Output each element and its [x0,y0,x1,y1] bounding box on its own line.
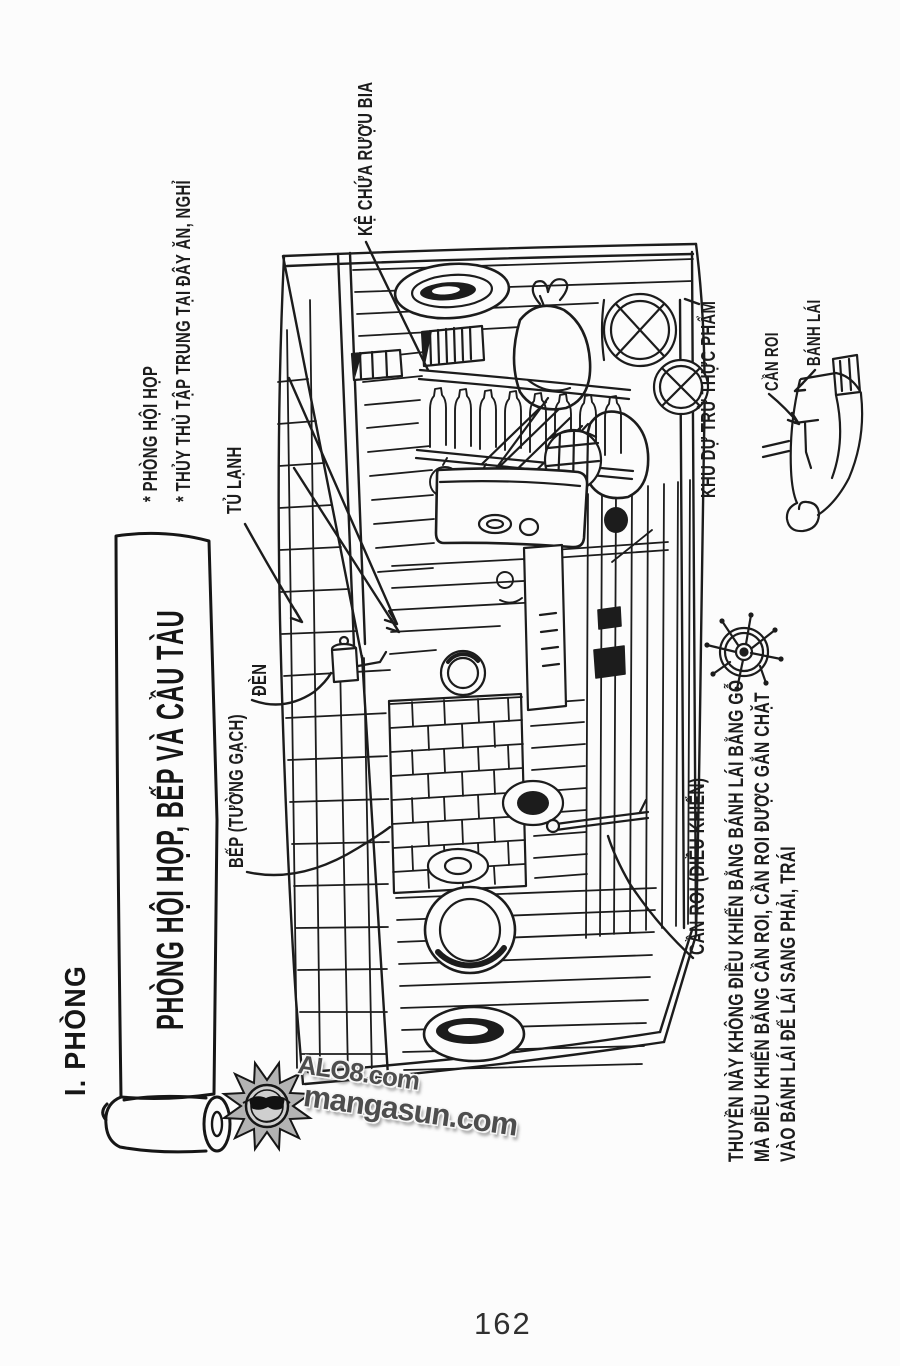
manga-page: I. PHÒNG PHÒNG HỘI HỌP, BẾP VÀ CẦU TÀU K… [0,0,900,1366]
footnote-line-3: VÀO BÁNH LÁI ĐỂ LÁI SANG PHẢI, TRÁI [778,846,799,1162]
label-phong-hoi-hop: * PHÒNG HỘI HỌP [141,366,161,502]
porthole-large [393,260,510,322]
fridge-handle [479,515,511,533]
label-den: ĐÈN [250,664,270,696]
label-ke-chua-ruou-bia: KỆ CHỨA RƯỢU BIA [356,82,376,236]
leader-meeting-2 [294,468,399,632]
leader-meeting-1 [289,378,397,624]
clutter [497,572,522,603]
cabinet [524,545,566,710]
fridge [436,468,587,547]
ceiling-grid [278,300,390,1078]
label-bep-tuong-gach: BẾP (TƯỜNG GẠCH) [227,714,247,868]
label-can-roi-dieu-khien: CẦN ROI (ĐIỀU KHIỂN) [687,778,708,955]
label-thuy-thu-tap-trung: * THỦY THỦ TẬP TRUNG TẠI ĐÂY ĂN, NGHỈ [174,180,194,502]
leader-tu-lanh [245,524,302,622]
leader-can-roi-dieu-khien [608,836,693,958]
banner-title: PHÒNG HỘI HỌP, BẾP VÀ CẦU TÀU [152,610,190,1030]
label-khu-du-tru-thuc-pham: KHU DỰ TRỮ THỰC PHẨM [699,301,719,498]
label-can-roi: CẦN ROI [763,332,781,391]
section-title: I. PHÒNG [62,965,91,1096]
page-number: 162 [474,1308,532,1339]
label-tu-lanh: TỦ LẠNH [225,446,245,514]
label-banh-lai: BÁNH LÁI [805,299,823,366]
footnote-line-2: MÀ ĐIỀU KHIỂN BẰNG CẦN ROI, CẦN ROI ĐƯỢC… [752,692,773,1162]
rope-coil [428,849,488,883]
fridge-handle [520,519,538,535]
footnote-line-1: THUYỀN NÀY KHÔNG ĐIỀU KHIỂN BẰNG BÁNH LÁ… [726,680,747,1162]
